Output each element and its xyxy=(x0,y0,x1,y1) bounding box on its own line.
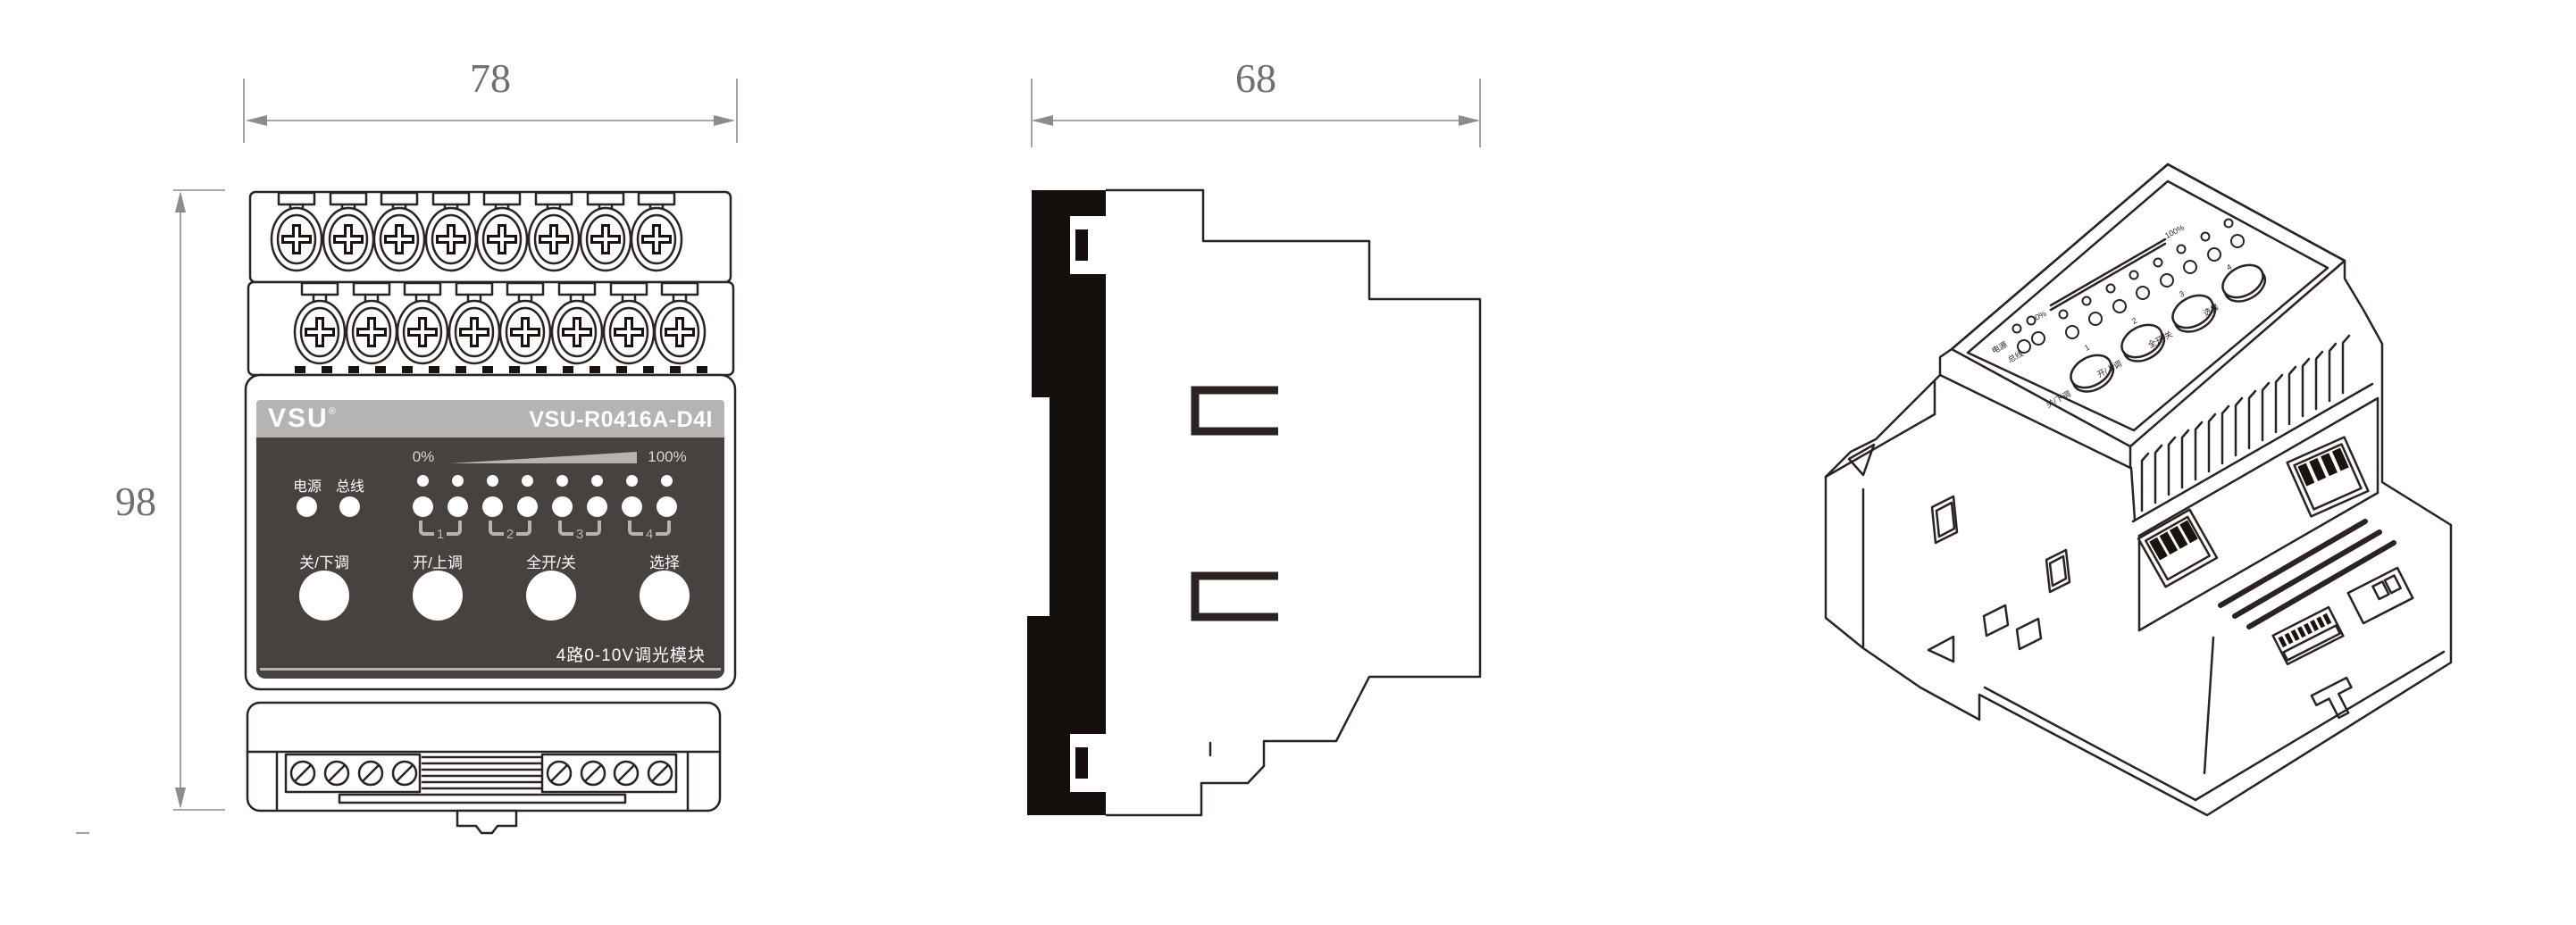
registered-mark: ® xyxy=(329,406,336,417)
bus-led-label: 总线 xyxy=(336,474,364,496)
dim-level-wedge xyxy=(449,452,637,463)
channel-group-3: 3 xyxy=(553,521,606,536)
label-band: VSU® VSU-R0416A-D4I xyxy=(256,400,724,437)
power-led xyxy=(297,496,317,517)
control-panel: 0% 100% 电源 总线 1 2 3 4 关/下调 开/上调 全开/关 选择 xyxy=(256,437,724,679)
select-button-label: 选择 xyxy=(649,550,680,572)
isometric-view: 0% 100% 1 2 3 4 关/下调 开/上调 全开/关 选择 电源 总线 xyxy=(1826,164,2451,815)
front-width-value: 78 xyxy=(470,55,511,101)
dimension-front-width: 78 xyxy=(244,55,737,143)
bottom-terminal-section xyxy=(247,703,720,833)
all-on-off-button xyxy=(526,571,576,621)
on-up-button xyxy=(413,571,463,621)
panel-separator-line xyxy=(260,668,721,671)
side-depth-value: 68 xyxy=(1235,55,1276,101)
select-button xyxy=(640,571,690,621)
scale-min-label: 0% xyxy=(413,448,435,466)
model-number: VSU-R0416A-D4I xyxy=(529,407,713,433)
dimension-front-height: 98 xyxy=(115,190,225,810)
brand-logo: VSU® xyxy=(268,404,336,434)
din-clip-tab xyxy=(457,811,516,833)
product-name: 4路0-10V调光模块 xyxy=(556,642,706,666)
channel-led-row xyxy=(413,496,691,517)
off-down-button xyxy=(299,571,349,621)
bus-led xyxy=(339,496,360,517)
dimension-side-depth: 68 xyxy=(1032,55,1480,147)
off-down-button-label: 关/下调 xyxy=(299,550,349,572)
technical-drawing-page: 78 98 68 xyxy=(0,0,2576,925)
din-rail-silhouette xyxy=(1027,190,1106,815)
all-on-off-button-label: 全开/关 xyxy=(526,550,576,572)
side-view xyxy=(1027,190,1480,815)
on-up-button-label: 开/上调 xyxy=(413,550,463,572)
scale-max-label: 100% xyxy=(648,448,686,466)
level-led-row-small xyxy=(417,475,696,487)
housing-profile xyxy=(1106,190,1480,815)
channel-group-2: 2 xyxy=(483,521,537,536)
front-panel: VSU® VSU-R0416A-D4I 0% 100% 电源 总线 1 2 3 … xyxy=(256,400,724,679)
channel-group-1: 1 xyxy=(414,521,467,536)
channel-group-4: 4 xyxy=(623,521,676,536)
power-led-label: 电源 xyxy=(293,474,322,496)
front-height-value: 98 xyxy=(115,479,156,524)
